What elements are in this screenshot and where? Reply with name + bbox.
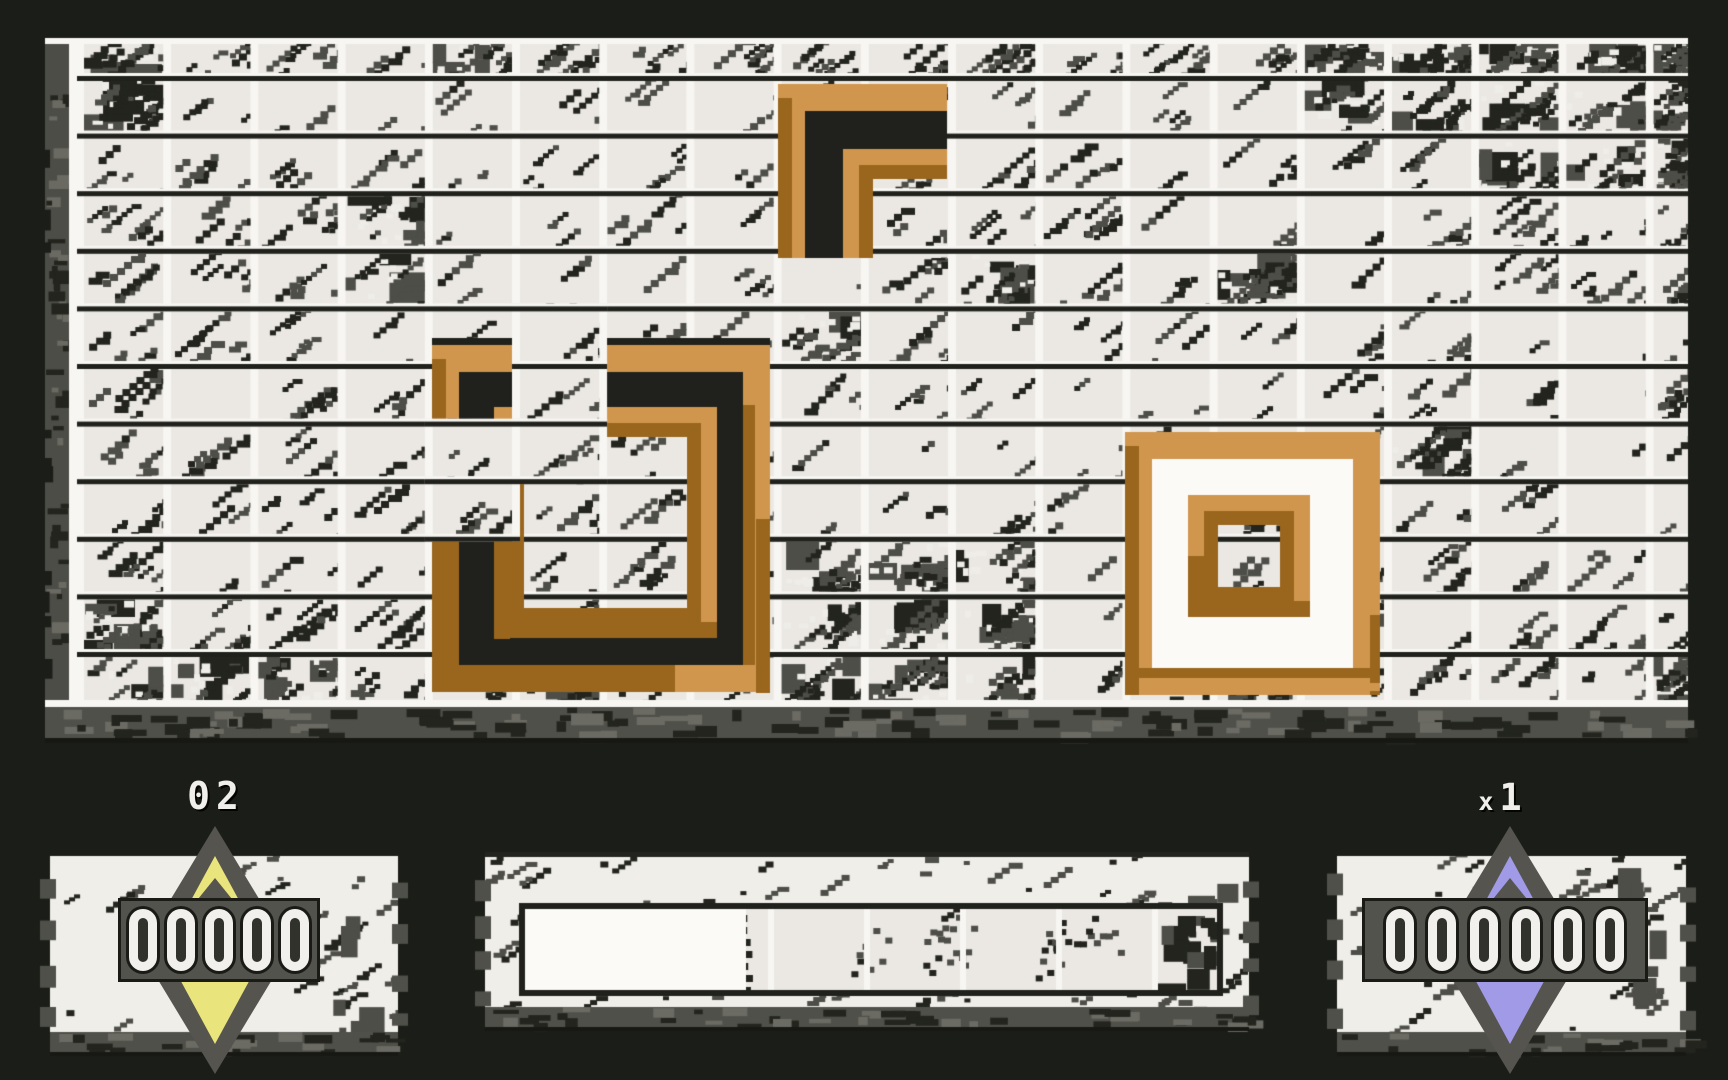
digit-zero	[129, 909, 157, 971]
multiplier-label: x1	[1423, 776, 1583, 819]
digit-zero	[205, 909, 233, 971]
digit-zero	[167, 909, 195, 971]
digit-zero	[1512, 909, 1540, 971]
corner-block-piece[interactable]	[778, 84, 947, 258]
digit-zero	[1596, 909, 1624, 971]
broken-ring-piece[interactable]	[432, 345, 770, 692]
digit-zero	[1554, 909, 1582, 971]
digit-zero	[1428, 909, 1456, 971]
digit-zero	[1386, 909, 1414, 971]
progress-meter	[519, 903, 1223, 996]
digit-zero	[281, 909, 309, 971]
double-ring-piece[interactable]	[1125, 432, 1380, 695]
counter-label-left: 02	[136, 774, 296, 818]
game-screen: 02 x1	[0, 0, 1728, 1080]
digit-zero	[243, 909, 271, 971]
counter-right	[1362, 898, 1648, 982]
counter-left	[118, 898, 320, 982]
digit-zero	[1470, 909, 1498, 971]
